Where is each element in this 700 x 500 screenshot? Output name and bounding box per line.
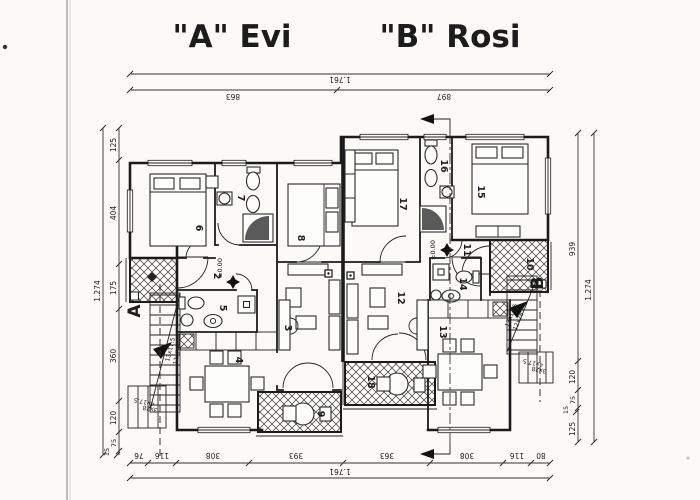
room-label-11: 11: [461, 243, 472, 256]
dim-bottom-seg: 393: [289, 451, 304, 460]
dim-bottom-seg: 80: [536, 451, 546, 460]
dim-bottom-seg: 363: [380, 451, 395, 460]
dim-left-seg: 360: [109, 349, 118, 364]
room-label-14: 14: [457, 277, 468, 291]
bathroom-16-fixtures: [420, 140, 454, 232]
room-label-10: 10: [524, 257, 535, 271]
dim-bottom-seg: 76: [134, 451, 144, 460]
dining-set-a: [190, 351, 264, 417]
dim-bottom-seg: 308: [206, 451, 221, 460]
room-label-4: 4: [233, 357, 244, 364]
entry-arrow-bottom: [420, 449, 434, 459]
section-label-b: B: [528, 277, 548, 290]
dim-left-seg: 120: [109, 411, 118, 426]
dim-bottom-overall: 1.761: [329, 467, 351, 476]
scan-artifacts: [3, 0, 690, 500]
kitchen-counter-b: [428, 300, 510, 318]
dim-left-seg: 15: [103, 448, 111, 456]
dim-left-seg: 125: [109, 138, 118, 153]
room-label-2: 2: [211, 273, 222, 280]
light-symbol-a: [226, 275, 240, 289]
dim-left-seg: 75: [110, 439, 118, 447]
terrace-detail-square-a: [131, 292, 139, 300]
entry-steps-treads-b: 3x28: [531, 364, 547, 374]
unit-a-title: "A" Evi: [172, 19, 291, 55]
entry-arrow-top: [420, 114, 434, 124]
dim-left-seg: 404: [109, 206, 118, 221]
dim-right-seg: 125: [568, 422, 577, 437]
dim-bottom-seg: 116: [510, 451, 525, 460]
dim-right-seg: 120: [568, 370, 577, 385]
room-label-5: 5: [217, 305, 228, 312]
room-label-15: 15: [475, 185, 486, 198]
sink-b: [493, 302, 508, 316]
level-label-b: ±0.00: [429, 240, 437, 260]
sink-a: [179, 334, 194, 348]
room-17-bed: [345, 150, 398, 226]
dim-bottom-seg: 308: [460, 451, 475, 460]
room-label-13: 13: [437, 325, 448, 338]
room-label-7: 7: [235, 195, 246, 202]
room-label-9: 9: [315, 411, 326, 418]
dim-right-overall: 1.274: [584, 279, 593, 301]
section-label-a: A: [125, 304, 145, 318]
unit-b-title: "B" Rosi: [380, 19, 521, 55]
dim-left-seg: 175: [109, 281, 118, 296]
dim-right-seg: 75: [569, 396, 577, 404]
room-label-8: 8: [295, 235, 306, 242]
floorplan-drawing: "A" Evi "B" Rosi 1.761 863 897 76 116 30…: [0, 0, 700, 500]
dim-right-seg: 939: [568, 242, 577, 257]
dim-top-overall: 1.761: [329, 75, 351, 84]
dim-left-overall: 1.274: [93, 280, 102, 302]
room-label-17: 17: [397, 197, 408, 210]
floorplan-scan-page: "A" Evi "B" Rosi 1.761 863 897 76 116 30…: [0, 0, 700, 500]
room-label-12: 12: [395, 291, 406, 304]
dim-bottom-seg: 116: [155, 451, 170, 460]
bathroom-7-fixtures: [217, 167, 273, 242]
room-label-16: 16: [438, 159, 449, 173]
light-symbol-b: [440, 243, 454, 257]
kitchen-counter-a: [177, 332, 277, 350]
dim-top-unit-b: 897: [437, 92, 452, 101]
dim-right-seg: 15: [562, 406, 570, 414]
wc-5-fixtures: [179, 296, 255, 328]
room-label-18: 18: [365, 375, 376, 389]
room-6-bed: [150, 174, 218, 246]
living-room-3-furniture: [279, 264, 340, 350]
room-label-3: 3: [282, 325, 293, 332]
living-room-12-furniture: [347, 264, 428, 354]
dim-top-unit-a: 863: [226, 92, 241, 101]
room-label-6: 6: [193, 225, 204, 232]
